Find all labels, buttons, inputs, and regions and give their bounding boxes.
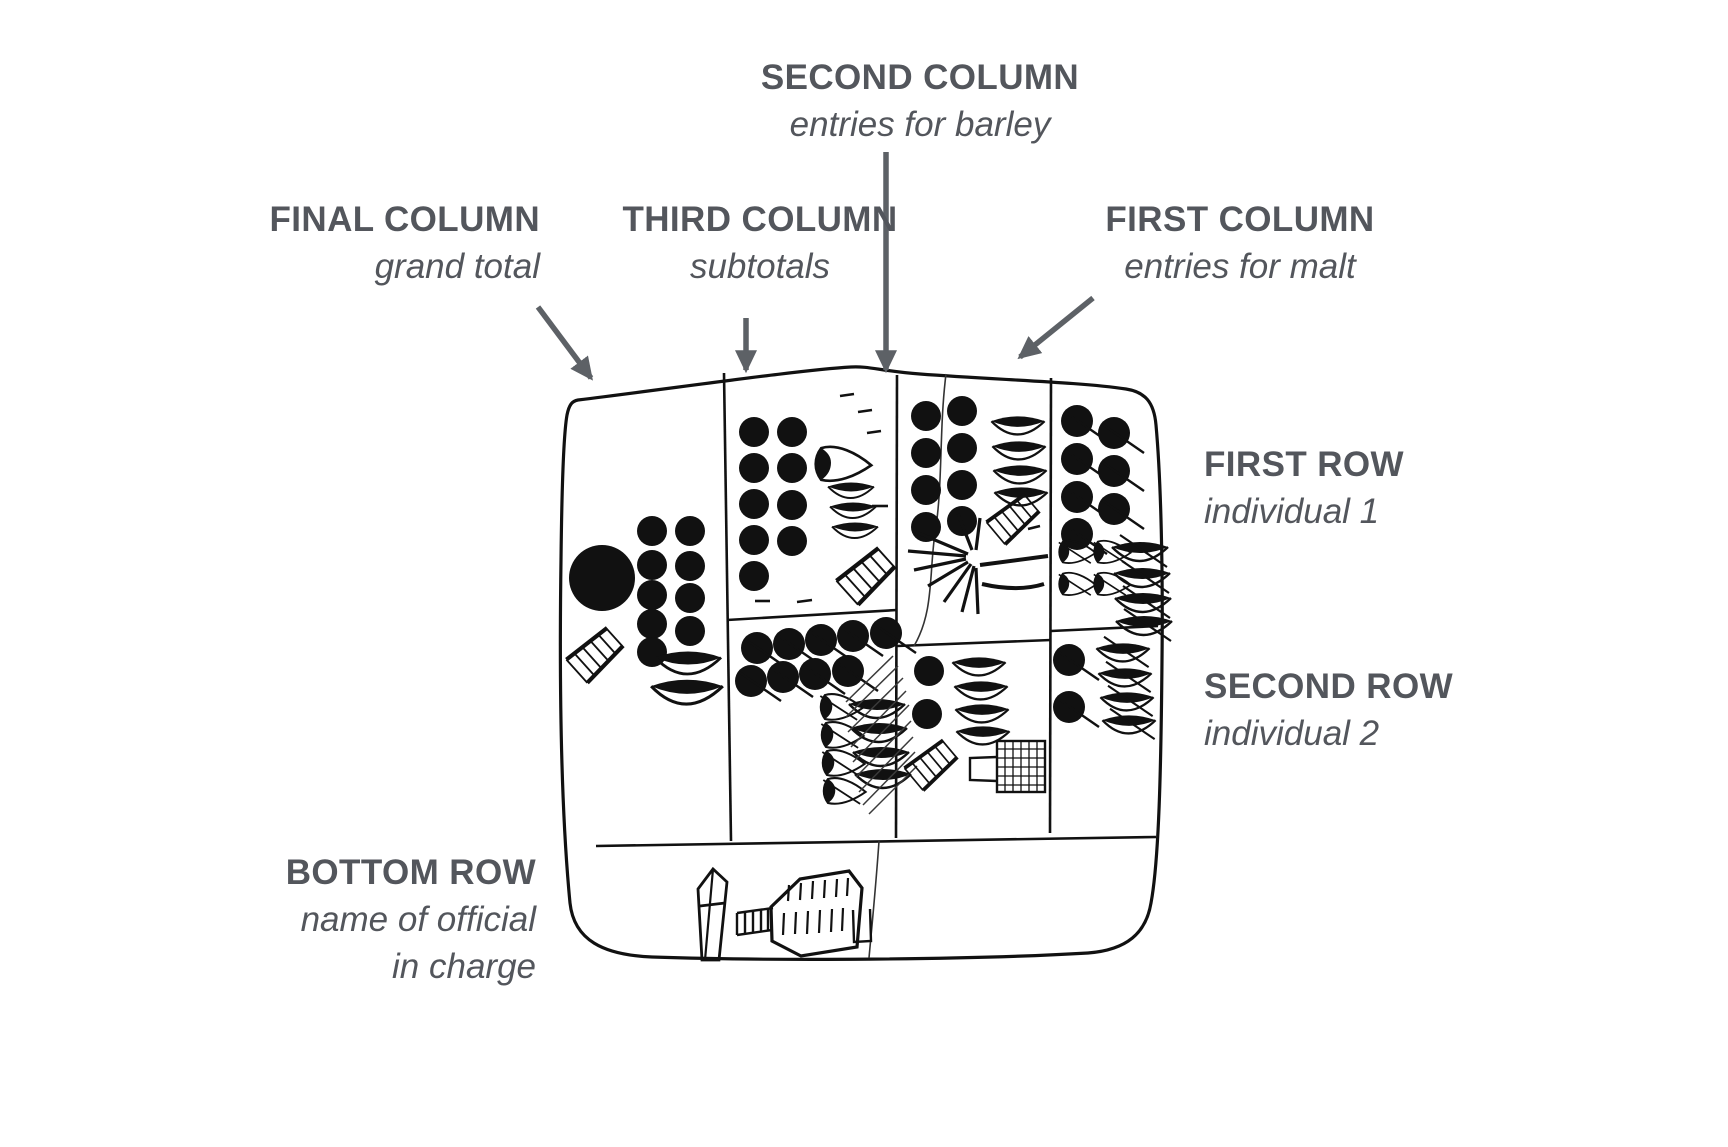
label-second-row: SECOND ROW individual 2 [1204,663,1644,757]
figure-canvas: SECOND COLUMN entries for barley FINAL C… [0,0,1728,1147]
second-column-title: SECOND COLUMN [670,54,1170,101]
bottom-row-subtitle-line2: in charge [150,943,536,990]
final-column-subtitle: grand total [190,243,540,290]
first-row-subtitle: individual 1 [1204,488,1634,535]
label-final-column: FINAL COLUMN grand total [190,196,540,290]
final-column-title: FINAL COLUMN [190,196,540,243]
bottom-row-subtitle-line1: name of official [150,896,536,943]
final-column-arrow [538,307,591,378]
divider-col-2 [896,375,897,838]
bottom-row-title: BOTTOM ROW [150,849,536,896]
label-first-row: FIRST ROW individual 1 [1204,441,1634,535]
label-bottom-row: BOTTOM ROW name of official in charge [150,849,536,990]
second-row-subtitle: individual 2 [1204,710,1644,757]
label-second-column: SECOND COLUMN entries for barley [670,54,1170,148]
label-first-column: FIRST COLUMN entries for malt [1050,196,1430,290]
large-disc-sign [569,545,635,611]
first-row-title: FIRST ROW [1204,441,1634,488]
first-column-subtitle: entries for malt [1050,243,1430,290]
label-third-column: THIRD COLUMN subtotals [575,196,945,290]
first-column-arrow [1020,298,1093,357]
third-column-title: THIRD COLUMN [575,196,945,243]
third-column-subtitle: subtotals [575,243,945,290]
first-column-title: FIRST COLUMN [1050,196,1430,243]
divider-col-3 [1050,378,1051,833]
second-row-title: SECOND ROW [1204,663,1644,710]
second-column-subtitle: entries for barley [670,101,1170,148]
